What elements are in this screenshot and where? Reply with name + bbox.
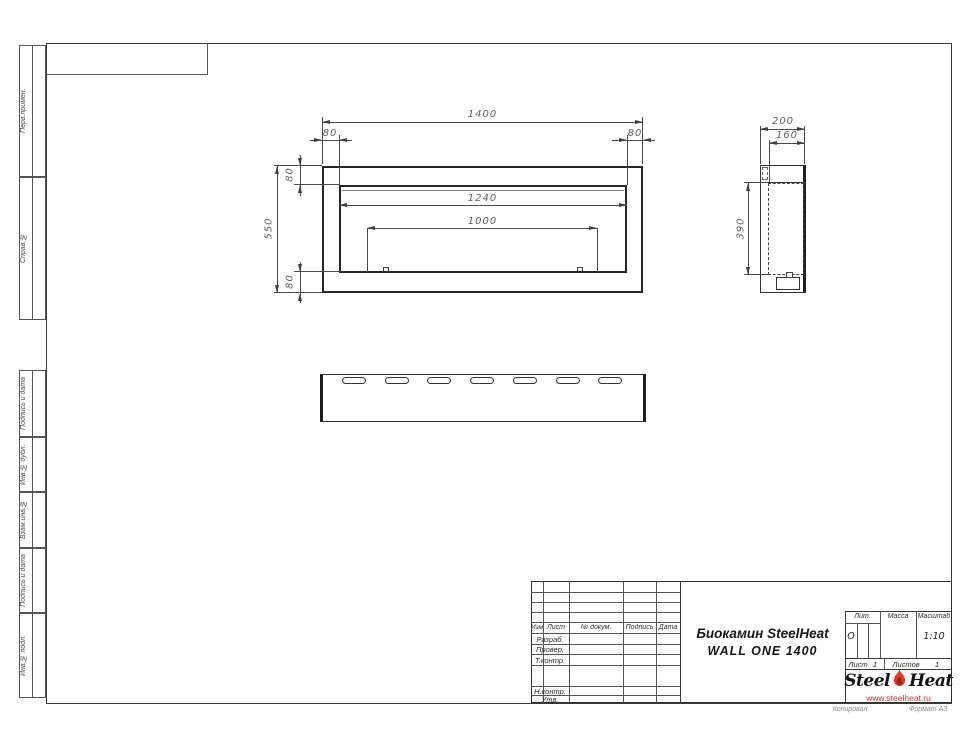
dim-arrow xyxy=(298,158,302,166)
dim-text-inner-depth: 160 xyxy=(766,130,808,141)
divider xyxy=(32,614,33,697)
tb-line xyxy=(857,623,858,658)
dim-text-height: 550 xyxy=(264,214,275,244)
burner-slot xyxy=(556,377,580,384)
tb-line xyxy=(884,658,885,669)
dim-line xyxy=(748,183,749,275)
burner-slot xyxy=(598,377,622,384)
dim-text-bottom-offset: 80 xyxy=(285,267,296,297)
burner-port xyxy=(383,267,389,271)
ext-line xyxy=(294,271,340,272)
format-label: Формат А3 xyxy=(898,706,958,713)
dim-text-opening: 1240 xyxy=(445,193,520,204)
tb-col-doc: № докум. xyxy=(569,624,623,631)
dim-line xyxy=(277,166,278,293)
drawing-sheet: Перв.примен. Справ.№ Подпись и дата Инв.… xyxy=(0,0,970,749)
burner-slot xyxy=(342,377,366,384)
ext-line xyxy=(597,228,598,272)
tb-col-sign: Подпись xyxy=(623,624,656,631)
margin-cell-sprav: Справ.№ xyxy=(19,177,46,320)
divider xyxy=(32,178,33,319)
margin-cell-perv: Перв.примен. xyxy=(19,45,46,177)
margin-cell-vzam: Взам.инв.№ xyxy=(19,492,46,548)
dim-arrow xyxy=(619,203,627,207)
ext-line xyxy=(294,184,340,185)
dim-arrow xyxy=(339,203,347,207)
dim-text-depth: 200 xyxy=(758,116,808,127)
ext-line xyxy=(627,135,628,185)
glass-edge-line xyxy=(342,190,624,191)
logo-text-heat: Heat xyxy=(909,671,953,691)
dim-line xyxy=(367,228,597,229)
tb-scale-label: Масштаб xyxy=(916,613,952,620)
tb-sheet-value: 1 xyxy=(869,660,881,669)
tb-col-izm: Изм. xyxy=(531,624,543,631)
divider xyxy=(32,549,33,612)
burner-slot xyxy=(385,377,409,384)
tb-line xyxy=(531,592,680,593)
tb-line xyxy=(531,665,680,666)
burner-slot xyxy=(427,377,451,384)
dim-arrow xyxy=(635,120,643,124)
tb-line xyxy=(845,658,952,659)
dim-arrow xyxy=(367,226,375,230)
tb-lit-label: Лит. xyxy=(845,613,880,620)
ext-line xyxy=(367,228,368,272)
burner-port xyxy=(577,267,583,271)
tb-col-date: Дата xyxy=(656,624,680,631)
tb-line xyxy=(656,581,657,703)
divider xyxy=(32,371,33,436)
burner-slot xyxy=(513,377,537,384)
tb-col-list: Лист xyxy=(543,624,569,631)
dim-arrow xyxy=(746,267,750,275)
dim-arrow xyxy=(797,141,805,145)
burner-slot xyxy=(470,377,494,384)
margin-cell-podpis1: Подпись и дата xyxy=(19,370,46,437)
tb-sheets-value: 1 xyxy=(928,660,946,669)
tb-row-razrab: Разраб. xyxy=(531,635,569,644)
tb-line xyxy=(531,633,680,634)
dim-line xyxy=(339,205,627,206)
side-hidden-opening xyxy=(768,183,804,275)
dim-arrow xyxy=(322,120,330,124)
tb-sheets-label: Листов xyxy=(888,660,924,669)
divider xyxy=(32,493,33,547)
ext-line xyxy=(769,140,770,182)
side-burner-box xyxy=(776,277,800,290)
tb-document-title: Биокамин SteelHeat WALL ONE 1400 xyxy=(681,582,844,702)
margin-cell-inv-podl: Инв.№ подл. xyxy=(19,613,46,698)
tb-line xyxy=(845,611,952,612)
ext-line xyxy=(760,126,761,164)
dim-text-burner: 1000 xyxy=(445,216,520,227)
dim-arrow xyxy=(275,166,279,174)
dim-text-left-offset: 80 xyxy=(315,128,345,139)
dim-arrow xyxy=(769,141,777,145)
copy-label: Копировал xyxy=(815,706,885,713)
dim-arrow xyxy=(298,185,302,193)
dim-text-opening-height: 390 xyxy=(736,214,747,244)
dim-arrow xyxy=(275,285,279,293)
tb-title-line1: Биокамин SteelHeat xyxy=(696,626,828,641)
ext-line xyxy=(339,135,340,185)
dim-text-width: 1400 xyxy=(445,109,520,120)
flame-icon xyxy=(892,669,907,692)
logo-url[interactable]: www.steelheat.ru xyxy=(866,693,931,703)
logo-text-steel: Steel xyxy=(844,671,890,691)
tb-sheet-label: Лист xyxy=(847,660,869,669)
tb-row-utv: Утв. xyxy=(531,695,569,704)
margin-cell-podpis2: Подпись и дата xyxy=(19,548,46,613)
tb-lit-value: О xyxy=(845,631,857,642)
dim-arrow xyxy=(298,293,302,301)
divider xyxy=(32,46,33,176)
tb-mass-label: Масса xyxy=(880,613,916,620)
side-burner-notch xyxy=(786,272,793,278)
dim-arrow xyxy=(746,183,750,191)
tb-line xyxy=(569,581,570,703)
tb-row-tkontr: Т.контр. xyxy=(531,656,569,665)
side-hidden-bracket xyxy=(762,167,768,180)
dim-text-top-offset: 80 xyxy=(285,160,296,190)
tb-title-line2: WALL ONE 1400 xyxy=(707,644,817,658)
tb-line xyxy=(868,623,869,658)
tb-row-prover: Провер. xyxy=(531,645,569,654)
tb-line xyxy=(845,623,880,624)
dim-arrow xyxy=(589,226,597,230)
tb-scale-value: 1:10 xyxy=(916,631,952,642)
top-designation-box xyxy=(46,43,208,75)
tb-line xyxy=(531,602,680,603)
divider xyxy=(32,438,33,491)
tb-line xyxy=(531,654,680,655)
tb-line xyxy=(531,612,680,613)
dim-line xyxy=(322,122,643,123)
tb-line xyxy=(531,622,680,623)
steelheat-logo: Steel Heat www.steelheat.ru xyxy=(845,669,952,703)
tb-line xyxy=(623,581,624,703)
dim-text-right-offset: 80 xyxy=(620,128,650,139)
margin-cell-inv-dubl: Инв.№ дубл. xyxy=(19,437,46,492)
